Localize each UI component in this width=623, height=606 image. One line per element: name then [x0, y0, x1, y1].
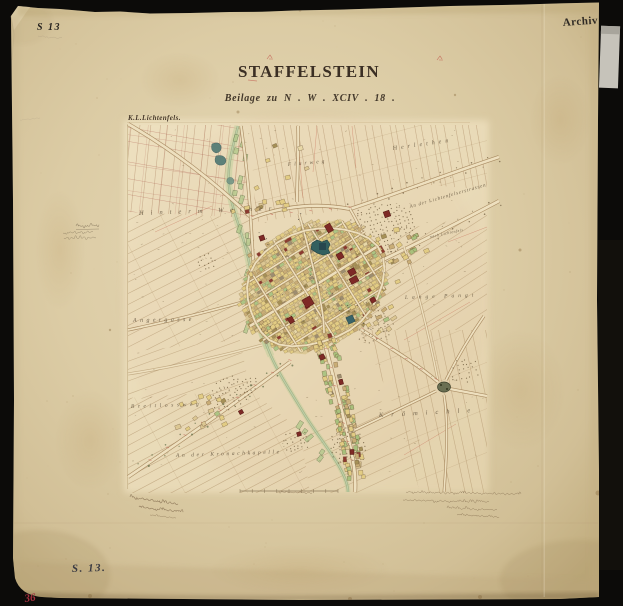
svg-text:Angergasse: Angergasse: [132, 317, 195, 324]
svg-text:S 13: S 13: [37, 22, 61, 33]
svg-text:K.L.Lichtenfels.: K.L.Lichtenfels.: [127, 114, 181, 122]
svg-text:Archiv: Archiv: [562, 15, 598, 29]
svg-text:36: 36: [23, 591, 37, 605]
svg-text:Beilage zu N . W . XCIV . 18: Beilage zu N . W . XCIV . 18 .: [224, 93, 396, 104]
svg-text:STAFFELSTEIN: STAFFELSTEIN: [238, 62, 380, 81]
svg-text:S. 13.: S. 13.: [72, 562, 107, 575]
